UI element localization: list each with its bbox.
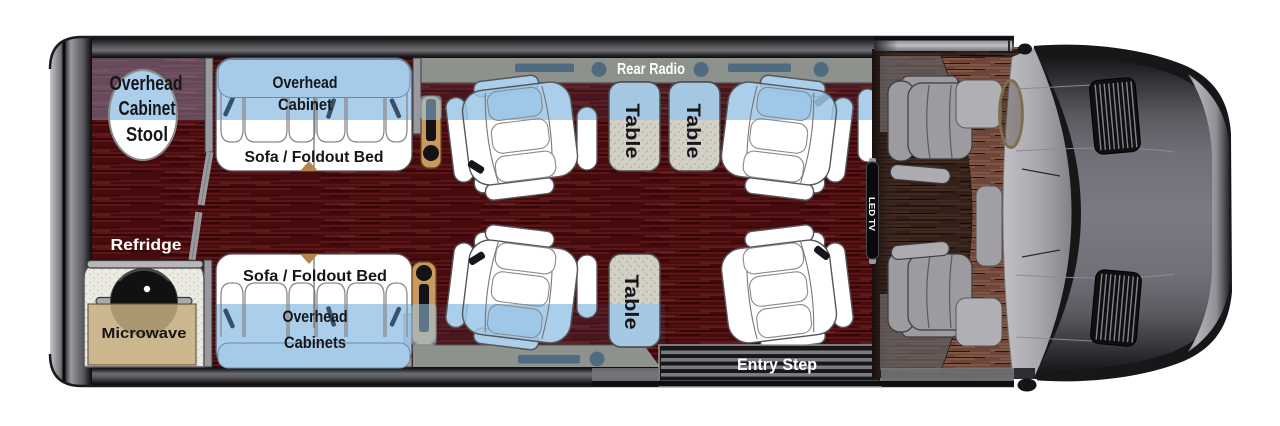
svg-text:Cabinets: Cabinets xyxy=(284,333,346,352)
svg-text:Rear Radio: Rear Radio xyxy=(617,61,685,78)
svg-text:Sofa / Foldout Bed: Sofa / Foldout Bed xyxy=(245,149,384,166)
svg-text:Overhead: Overhead xyxy=(273,73,338,92)
svg-text:Sofa / Foldout Bed: Sofa / Foldout Bed xyxy=(243,268,387,285)
svg-text:Cabinet: Cabinet xyxy=(278,95,332,114)
svg-text:Table: Table xyxy=(621,104,642,159)
svg-text:Overhead: Overhead xyxy=(283,307,348,326)
svg-text:Entry Step: Entry Step xyxy=(737,356,817,374)
svg-text:Refridge: Refridge xyxy=(111,237,182,254)
svg-text:Microwave: Microwave xyxy=(102,325,187,342)
svg-text:Cabinet: Cabinet xyxy=(119,98,176,120)
svg-text:LED TV: LED TV xyxy=(867,197,877,231)
svg-text:Stool: Stool xyxy=(126,124,168,146)
svg-text:Table: Table xyxy=(682,104,703,159)
svg-text:Overhead: Overhead xyxy=(110,73,183,95)
svg-text:Table: Table xyxy=(620,275,641,330)
